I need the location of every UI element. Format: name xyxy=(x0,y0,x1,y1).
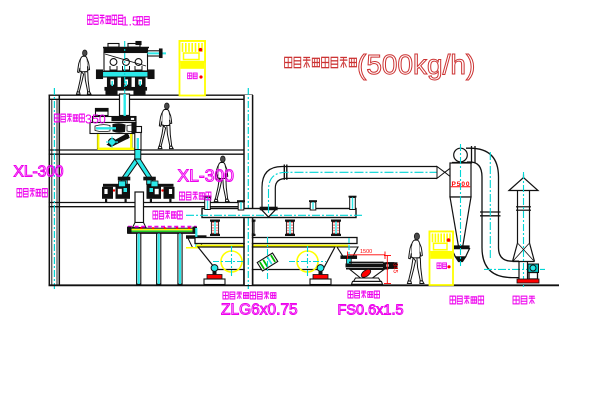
svg-text:XL-300: XL-300 xyxy=(178,166,235,186)
svg-text:345: 345 xyxy=(392,263,398,274)
svg-text:350: 350 xyxy=(85,113,106,127)
svg-text:1500: 1500 xyxy=(360,249,372,255)
svg-text:XL-300: XL-300 xyxy=(14,164,64,181)
svg-text:FS0.6x1.5: FS0.6x1.5 xyxy=(338,303,404,319)
svg-text:(500kg/h): (500kg/h) xyxy=(357,49,475,80)
svg-text:ZLG6x0.75: ZLG6x0.75 xyxy=(221,302,298,319)
svg-text:1.5: 1.5 xyxy=(122,15,139,29)
